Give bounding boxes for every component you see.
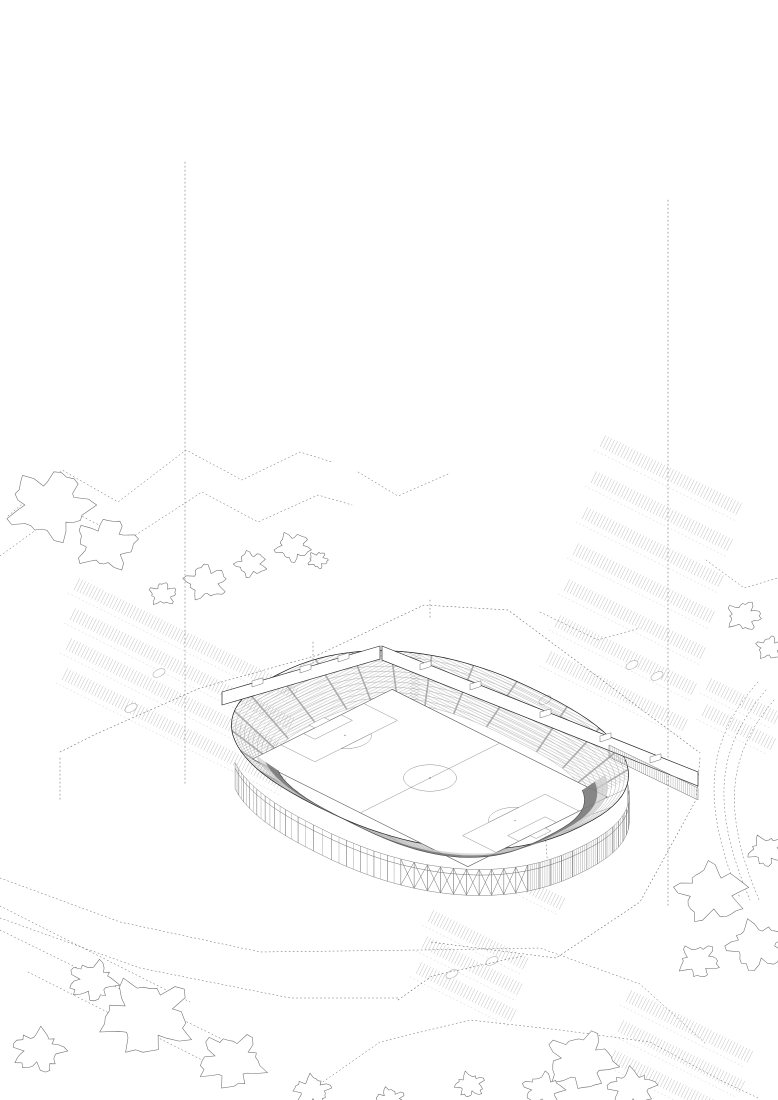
drawing-sheet (0, 0, 778, 1100)
tree (308, 552, 328, 568)
tree (679, 946, 719, 977)
exploded-axonometric-stadium-drawing (0, 0, 778, 1100)
tree (674, 861, 749, 922)
parking-lot (696, 678, 778, 754)
tree (607, 1066, 658, 1100)
tree (79, 519, 139, 570)
bush (445, 968, 460, 980)
tree (748, 835, 778, 866)
tree (13, 1026, 68, 1072)
parking-lot (410, 910, 528, 1027)
tree (756, 636, 778, 659)
bush (650, 670, 665, 682)
tree (454, 1071, 484, 1096)
tree (725, 919, 778, 971)
tree (549, 1031, 620, 1089)
parking-lot (540, 435, 742, 736)
tree (200, 1035, 267, 1089)
tree (375, 1087, 404, 1100)
tree (233, 551, 266, 578)
tree (728, 602, 761, 629)
bush (124, 702, 139, 714)
tree (100, 978, 192, 1052)
tree (293, 1073, 332, 1100)
tree (149, 583, 176, 605)
ground-level-layer (222, 646, 698, 896)
bush (152, 667, 167, 679)
bush (485, 955, 500, 967)
tree (274, 532, 311, 562)
tree (183, 564, 226, 600)
tree (70, 959, 120, 1001)
